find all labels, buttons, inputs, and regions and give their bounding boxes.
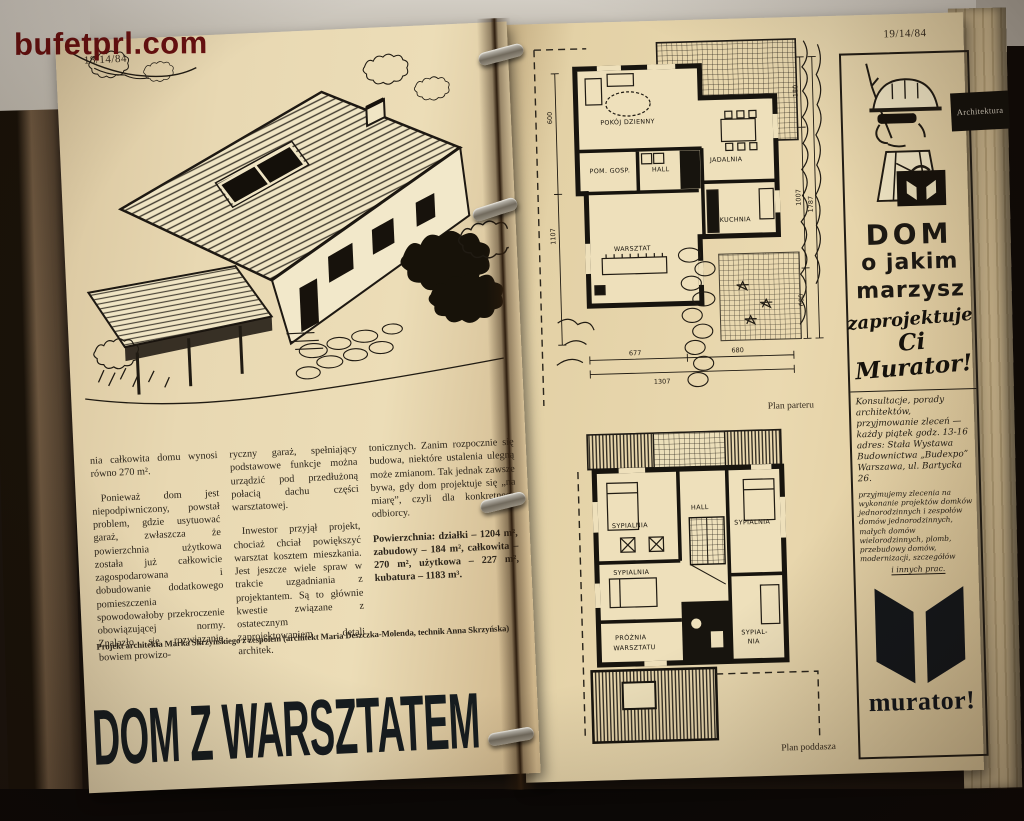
svg-text:POM. GOSP.: POM. GOSP. — [590, 167, 631, 175]
article-column-3: tonicznych. Zanim rozpocznie się budowa,… — [369, 436, 523, 652]
svg-text:680: 680 — [731, 346, 744, 354]
watermark-text: bufetprl.com — [14, 25, 208, 63]
ad-slogan-line: marzysz — [856, 275, 965, 306]
ad-slogan: DOM o jakim marzysz — [854, 218, 965, 305]
svg-text:WARSZTAT: WARSZTAT — [614, 245, 651, 253]
table-surface — [0, 789, 1024, 821]
section-tab-label: Architektura — [956, 105, 1003, 117]
svg-text:677: 677 — [629, 349, 642, 357]
svg-text:JADALNIA: JADALNIA — [709, 156, 743, 164]
paragraph: ryczny garaż, spełniający podstawowe fun… — [229, 443, 359, 515]
svg-text:1007: 1007 — [794, 189, 802, 206]
svg-text:600: 600 — [546, 112, 554, 125]
svg-text:600: 600 — [797, 294, 805, 307]
area-summary: Powierzchnia: działki – 1204 m², zabudow… — [373, 526, 520, 586]
svg-text:NIA: NIA — [748, 637, 761, 645]
ad-slogan-line: DOM — [854, 218, 963, 250]
murator-logo — [867, 577, 974, 688]
svg-text:1787: 1787 — [807, 196, 815, 213]
right-page-number: 19/14/84 — [883, 27, 926, 40]
article-headline: DOM Z WARSZTATEM — [91, 675, 482, 783]
section-tab-architektura: Architektura — [950, 91, 1010, 132]
attic-plan-caption: Plan poddasza — [781, 742, 836, 754]
ad-services-note: przyjmujemy zlecenia na wykonanie projek… — [853, 487, 981, 564]
left-page: 18/14/84 — [55, 21, 541, 793]
svg-text:SYPIALNIA: SYPIALNIA — [613, 568, 649, 577]
ad-consultation-note: Konsultacje, porady architektów, przyjmo… — [851, 394, 979, 485]
article-column-2: ryczny garaż, spełniający podstawowe fun… — [229, 443, 366, 658]
property-line — [578, 472, 585, 737]
roof-band — [587, 430, 781, 470]
murator-logo-text: murator! — [868, 685, 975, 718]
svg-text:HALL: HALL — [652, 166, 670, 173]
ground-plan-caption: Plan parteru — [768, 401, 814, 412]
svg-text:SYPIALNIA: SYPIALNIA — [612, 521, 648, 530]
garden — [719, 252, 802, 341]
ad-divider — [850, 388, 976, 393]
tool-case — [896, 165, 946, 206]
svg-text:HALL: HALL — [691, 503, 709, 511]
ad-script-slogan: zaprojektuje Ci Murator! — [847, 305, 978, 385]
svg-text:SYPIALNIA: SYPIALNIA — [734, 518, 770, 527]
svg-text:SYPIAL-: SYPIAL- — [741, 628, 768, 637]
house-illustration — [63, 24, 517, 441]
paragraph: nia całkowita domu wynosi równo 270 m². — [90, 449, 219, 481]
svg-text:180: 180 — [791, 85, 799, 98]
attic-plan: SYPIALNIA HALL SYPIALNIA SYPIALNIA SYPIA… — [556, 424, 835, 747]
ad-services-note-end: i innych prac. — [891, 564, 945, 576]
builder-illustration — [843, 52, 969, 217]
ground-floor-plan: POKÓJ DZIENNY JADALNIA POM. GOSP. HALL K… — [526, 36, 838, 418]
magazine-photo: Architektura 18/14/84 — [0, 0, 1024, 821]
roof-outline-dashed — [716, 671, 820, 739]
murator-ad: DOM o jakim marzysz zaprojektuje Ci Mura… — [839, 50, 989, 759]
svg-text:1107: 1107 — [549, 228, 557, 245]
right-page: 19/14/84 — [505, 12, 984, 782]
svg-text:PRÓŻNIA: PRÓŻNIA — [615, 632, 647, 642]
svg-text:1307: 1307 — [654, 377, 671, 385]
workshop-roof-hatch — [592, 668, 718, 743]
carport — [88, 265, 275, 397]
svg-text:WARSZTATU: WARSZTATU — [613, 643, 656, 652]
ad-slogan-line: o jakim — [855, 248, 964, 279]
svg-text:KUCHNIA: KUCHNIA — [720, 216, 752, 224]
article-column-1: nia całkowita domu wynosi równo 270 m². … — [90, 449, 227, 664]
